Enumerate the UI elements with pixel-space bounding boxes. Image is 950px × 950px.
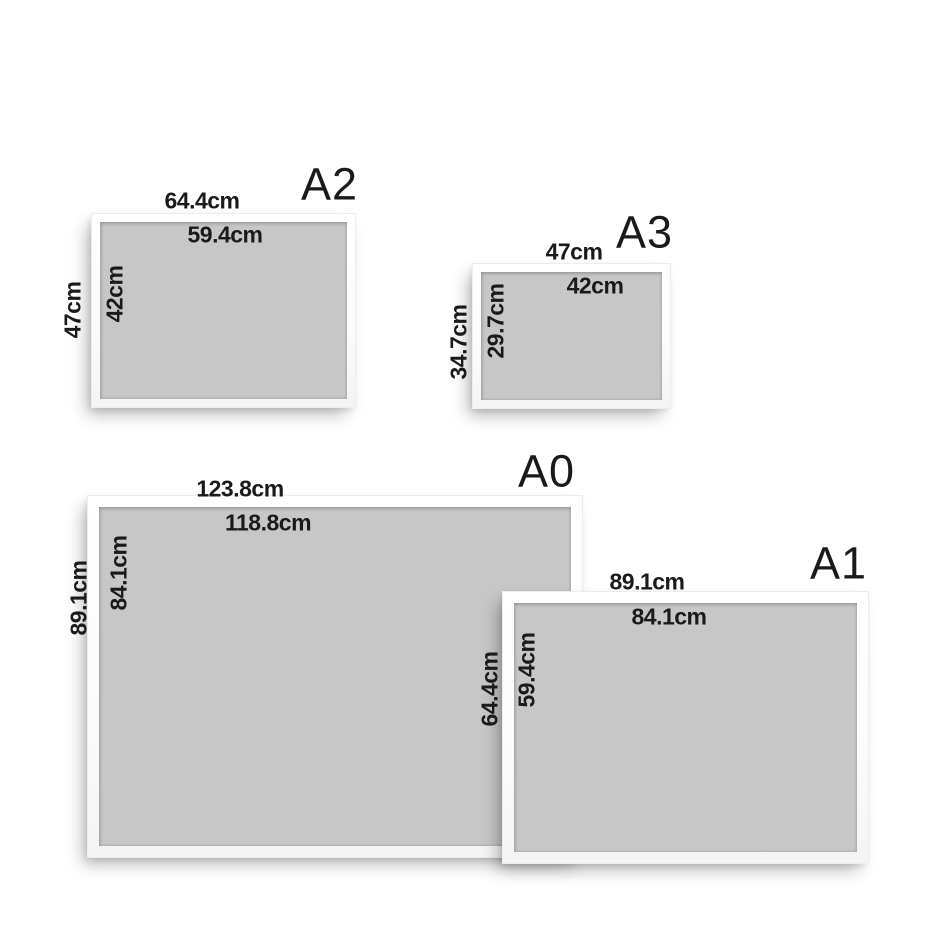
a1-outer-height-label: 64.4cm	[479, 651, 502, 726]
a3-outer-height-label: 34.7cm	[448, 304, 471, 379]
a1-outer-width-label: 89.1cm	[609, 571, 684, 594]
a3-inner-width-label: 42cm	[567, 275, 624, 298]
a0-title: A0	[518, 449, 575, 494]
a0-inner-width-label: 118.8cm	[225, 512, 311, 535]
a3-inner-height-label: 29.7cm	[485, 283, 508, 358]
a2-mat	[100, 222, 347, 399]
a2-inner-width-label: 59.4cm	[187, 224, 262, 247]
a1-mat	[514, 603, 857, 852]
a2-outer-height-label: 47cm	[62, 282, 85, 339]
a1-inner-height-label: 59.4cm	[516, 632, 539, 707]
a2-outer-width-label: 64.4cm	[164, 190, 239, 213]
a3-outer-width-label: 47cm	[546, 241, 603, 264]
a1-frame	[503, 592, 868, 863]
a1-title: A1	[810, 541, 867, 586]
a0-outer-width-label: 123.8cm	[196, 478, 283, 501]
a0-outer-height-label: 89.1cm	[68, 560, 91, 635]
a0-inner-height-label: 84.1cm	[108, 535, 131, 610]
a2-title: A2	[301, 162, 358, 207]
a3-title: A3	[616, 210, 673, 255]
a1-inner-width-label: 84.1cm	[631, 606, 706, 629]
a2-inner-height-label: 42cm	[104, 266, 127, 323]
frame-size-comparison-diagram: A2 64.4cm 59.4cm 47cm 42cm A3 47cm 42cm …	[0, 0, 950, 950]
